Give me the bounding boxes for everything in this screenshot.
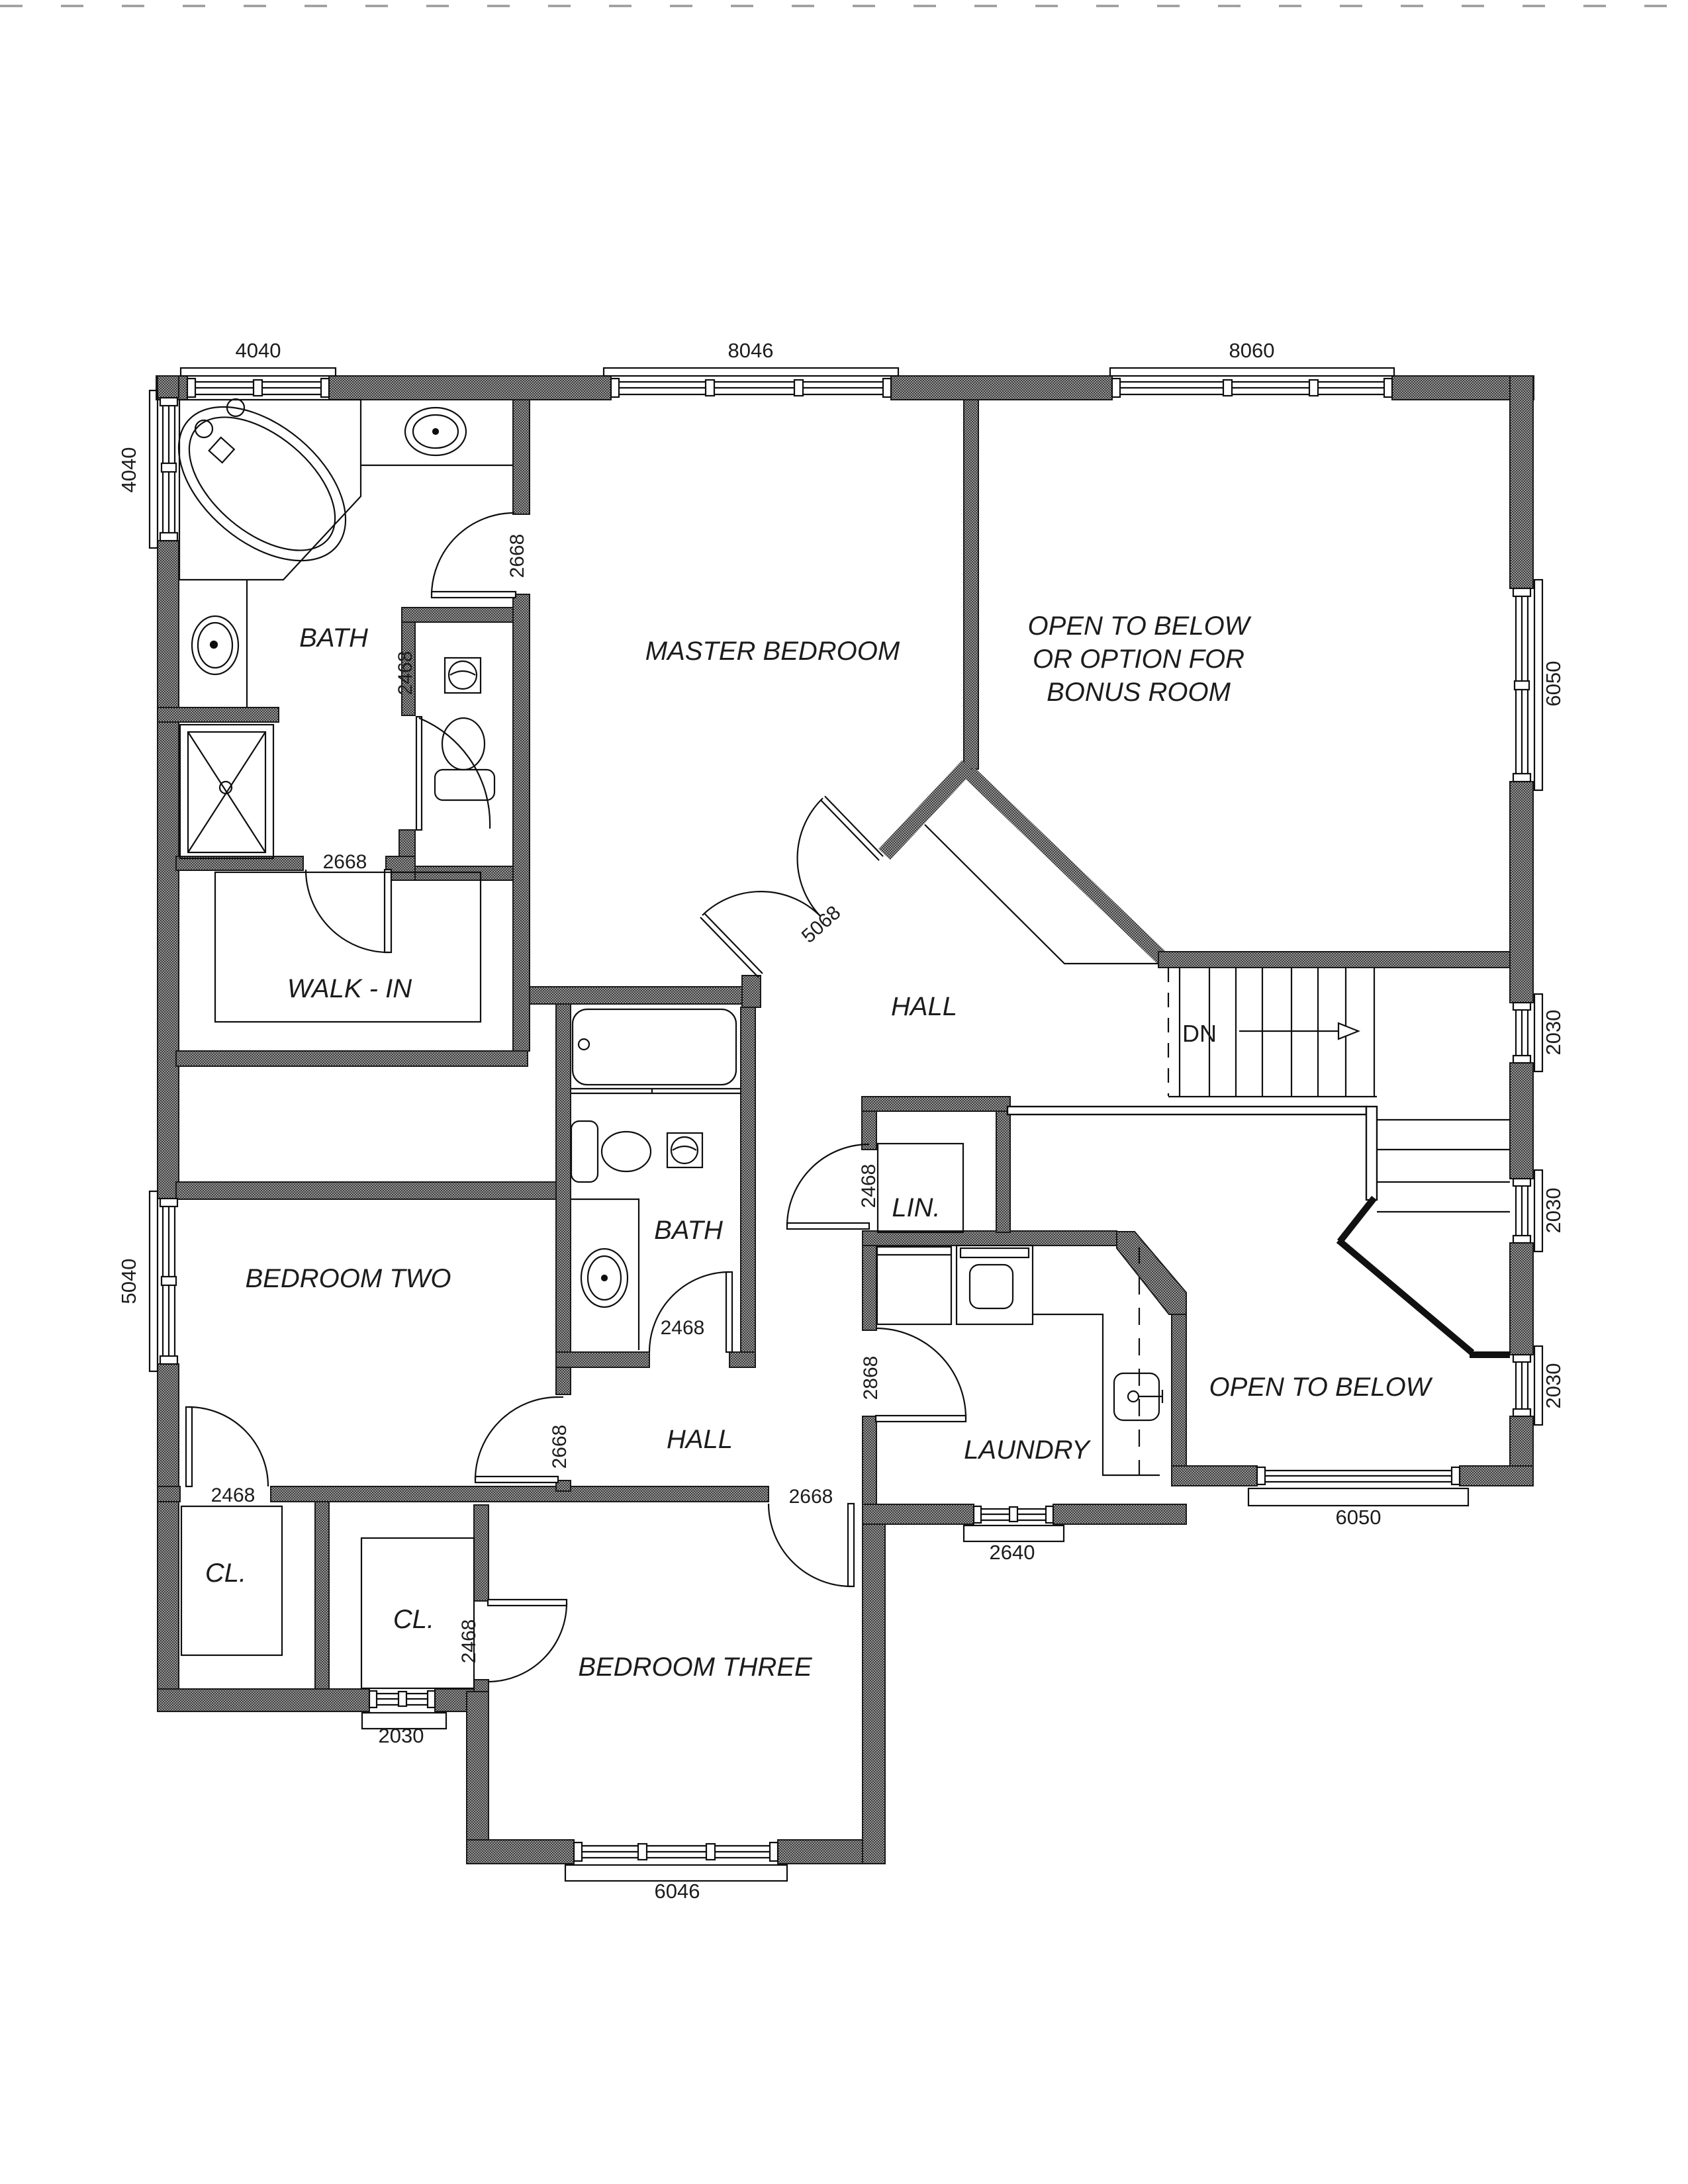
- svg-text:LIN.: LIN.: [892, 1193, 940, 1222]
- svg-text:WALK - IN: WALK - IN: [287, 974, 412, 1003]
- svg-text:6046: 6046: [655, 1880, 700, 1903]
- svg-text:OPEN TO BELOW: OPEN TO BELOW: [1028, 612, 1252, 641]
- svg-text:OR OPTION FOR: OR OPTION FOR: [1033, 645, 1244, 674]
- svg-text:CL.: CL.: [393, 1605, 434, 1634]
- svg-text:BEDROOM TWO: BEDROOM TWO: [245, 1264, 451, 1293]
- svg-text:2468: 2468: [661, 1317, 705, 1339]
- svg-text:8046: 8046: [728, 339, 774, 362]
- svg-text:2030: 2030: [379, 1724, 424, 1747]
- svg-text:8060: 8060: [1229, 339, 1275, 362]
- svg-text:2668: 2668: [789, 1486, 833, 1508]
- svg-text:BATH: BATH: [654, 1216, 723, 1245]
- svg-text:HALL: HALL: [667, 1425, 733, 1454]
- svg-text:BEDROOM THREE: BEDROOM THREE: [578, 1653, 813, 1682]
- svg-text:2668: 2668: [506, 534, 528, 578]
- svg-text:BONUS ROOM: BONUS ROOM: [1047, 678, 1231, 707]
- svg-text:6050: 6050: [1336, 1506, 1382, 1529]
- svg-text:2468: 2468: [211, 1484, 256, 1506]
- svg-text:OPEN TO BELOW: OPEN TO BELOW: [1209, 1373, 1433, 1402]
- svg-text:6050: 6050: [1542, 661, 1565, 707]
- svg-text:BATH: BATH: [299, 623, 368, 653]
- svg-text:HALL: HALL: [891, 992, 957, 1021]
- svg-text:LAUNDRY: LAUNDRY: [964, 1435, 1092, 1465]
- svg-text:2030: 2030: [1542, 1010, 1565, 1056]
- svg-text:2668: 2668: [549, 1425, 571, 1469]
- svg-text:2468: 2468: [458, 1619, 480, 1664]
- svg-text:4040: 4040: [117, 447, 140, 493]
- svg-text:2668: 2668: [323, 851, 367, 873]
- svg-text:2468: 2468: [395, 651, 416, 696]
- svg-text:2468: 2468: [858, 1164, 880, 1208]
- svg-text:5040: 5040: [117, 1259, 140, 1304]
- svg-text:2030: 2030: [1542, 1188, 1565, 1234]
- svg-text:2640: 2640: [990, 1541, 1035, 1564]
- svg-text:2030: 2030: [1542, 1363, 1565, 1409]
- svg-text:MASTER BEDROOM: MASTER BEDROOM: [645, 637, 900, 666]
- svg-text:DN: DN: [1182, 1020, 1217, 1047]
- svg-text:2868: 2868: [860, 1356, 882, 1400]
- svg-text:4040: 4040: [236, 339, 281, 362]
- svg-text:CL.: CL.: [205, 1559, 246, 1588]
